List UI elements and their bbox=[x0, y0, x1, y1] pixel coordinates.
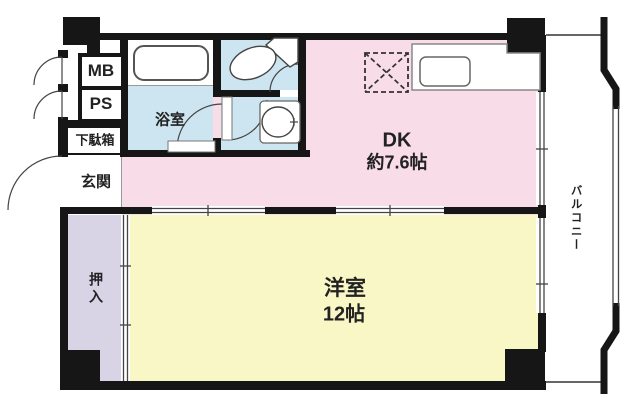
door-arc bbox=[34, 91, 62, 119]
ps-label: PS bbox=[90, 94, 113, 114]
washbasin-icon bbox=[260, 101, 300, 143]
door-arc bbox=[270, 64, 298, 92]
floor-plan: MB PS 下駄箱 玄関 浴室 DK 約7.6帖 洋室 12帖 押入 バルコニー bbox=[0, 0, 640, 412]
balcony-outline bbox=[546, 17, 619, 394]
dk-label: DK bbox=[383, 130, 412, 153]
door-leaf bbox=[222, 97, 232, 140]
kitchen-counter-icon bbox=[412, 44, 540, 90]
opening-underlays bbox=[121, 90, 548, 381]
balcony-wall bbox=[604, 17, 616, 109]
bathtub-icon bbox=[134, 46, 208, 80]
refrigerator-space-icon bbox=[365, 53, 408, 92]
closet-label: 押入 bbox=[88, 272, 104, 306]
door-leaf bbox=[168, 141, 215, 152]
basin-bowl bbox=[262, 107, 294, 137]
toilet-icon bbox=[225, 38, 298, 86]
kitchen-sink-icon bbox=[420, 57, 470, 86]
balcony-wall bbox=[604, 303, 616, 394]
western-room-label: 洋室 bbox=[324, 277, 366, 301]
balcony-label: バルコニー bbox=[568, 184, 581, 252]
door-arc bbox=[34, 57, 62, 85]
western-room-size-label: 12帖 bbox=[323, 304, 365, 327]
mb-label: MB bbox=[88, 61, 114, 81]
opening bbox=[280, 90, 298, 97]
railing-icon bbox=[613, 106, 619, 306]
dk-size-label: 約7.6帖 bbox=[366, 153, 427, 174]
shoe-cabinet-label: 下駄箱 bbox=[75, 134, 114, 149]
opening bbox=[121, 215, 130, 381]
door-arc bbox=[8, 156, 62, 210]
opening bbox=[536, 218, 548, 313]
bathroom-label: 浴室 bbox=[155, 111, 185, 128]
entrance-label: 玄関 bbox=[81, 173, 111, 190]
